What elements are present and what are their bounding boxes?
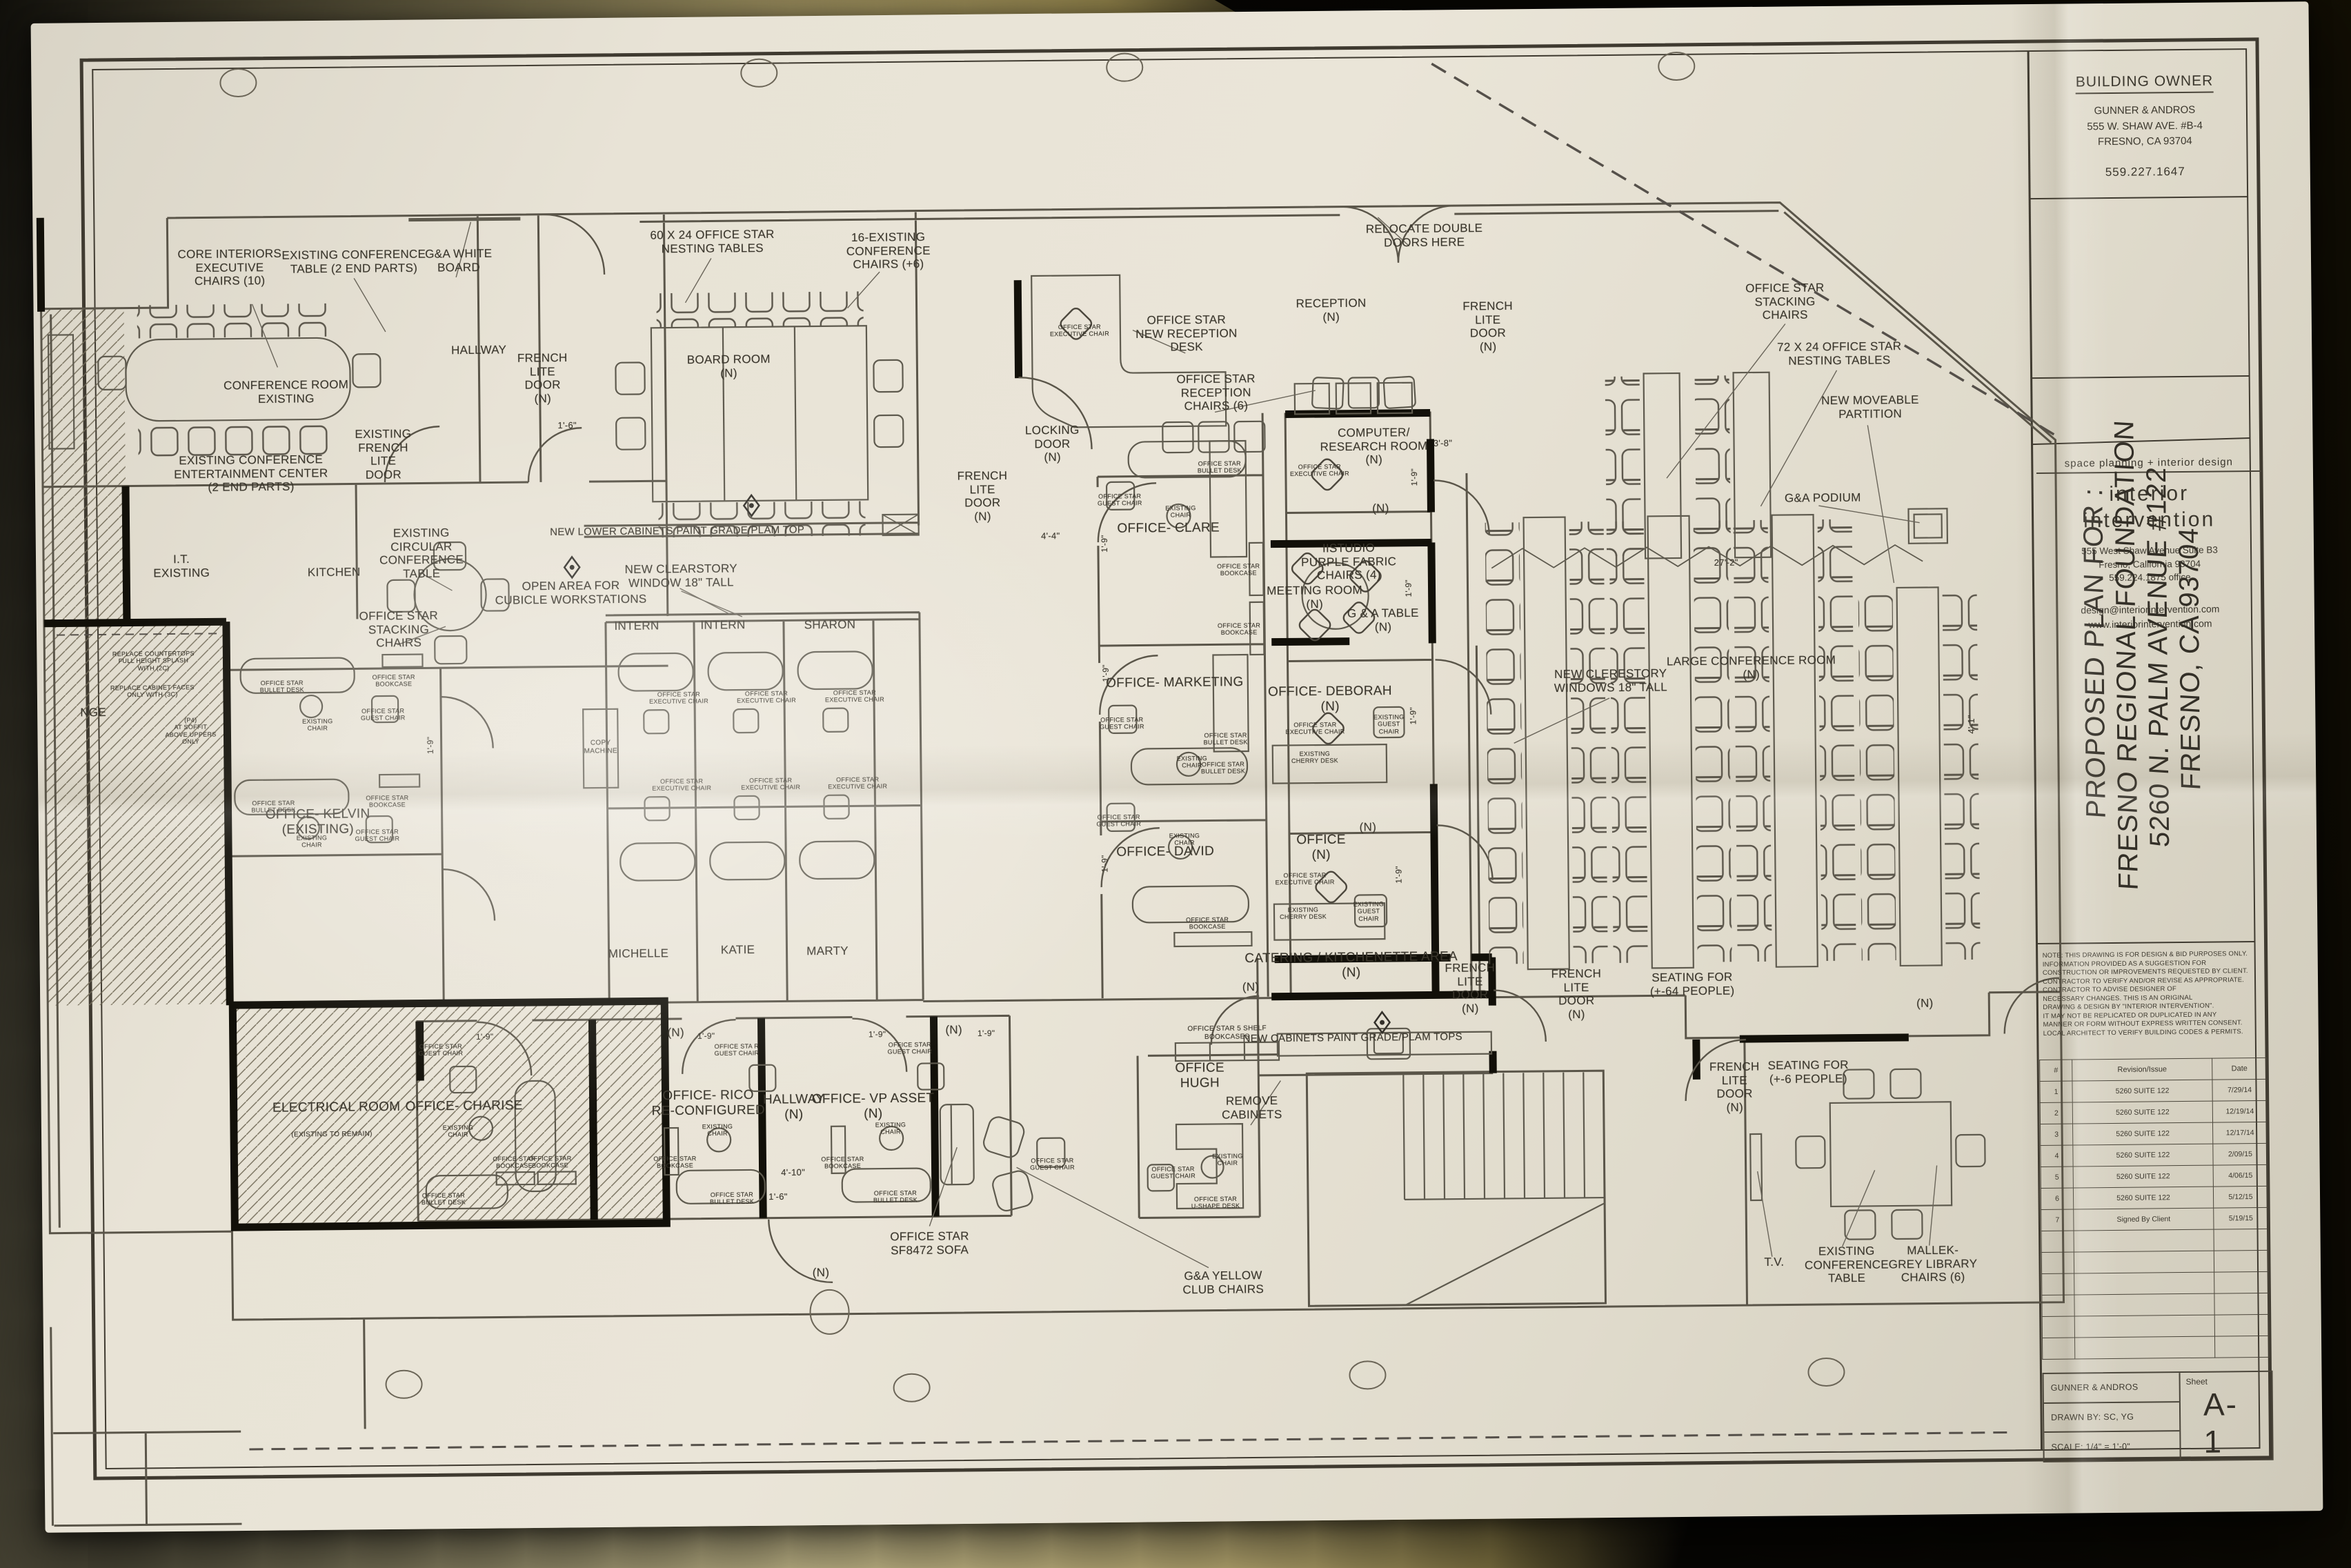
plan-label: OFFICE STA R GUEST CHAIR [714, 1042, 759, 1057]
plan-label: (N) [1372, 502, 1389, 515]
plan-label: OFFICE STAR BULLET DESK [260, 679, 304, 694]
plan-label: OFFICE STAR BOOKCASE [821, 1155, 864, 1170]
plan-label: FRENCH LITE DOOR (N) [1445, 961, 1495, 1016]
plan-label: OFFICE STAR EXECUTIVE CHAIR [649, 691, 708, 706]
plan-label: (N) [945, 1023, 962, 1037]
plan-label: 16-EXISTING CONFERENCE CHAIRS (+6) [846, 230, 931, 272]
plan-label: 1'-9" [1409, 707, 1418, 725]
plan-label: G&A PODIUM [1785, 491, 1861, 506]
plan-label: IISTUDIO PURPLE FABRIC CHAIRS (4) [1301, 541, 1397, 582]
plan-label: KITCHEN [308, 565, 361, 579]
plan-label: 1'-6" [557, 420, 577, 430]
plan-label: OFFICE STAR U-SHAPE DESK [1191, 1195, 1240, 1211]
plan-label: OPEN AREA FOR CUBICLE WORKSTATIONS [495, 579, 646, 608]
plan-label: OFFICE- MARKETING [1106, 675, 1244, 691]
plan-label: 4'-1" [1966, 715, 1976, 734]
plan-label: 1'-9" [978, 1029, 995, 1039]
plan-label: OFFICE STAR BULLET DESK [1198, 460, 1242, 475]
plan-label: 72 X 24 OFFICE STAR NESTING TABLES [1777, 339, 1902, 368]
plan-label: NEW MOVEABLE PARTITION [1821, 393, 1919, 421]
plan-label: RECEPTION (N) [1296, 297, 1367, 324]
plan-label: COMPUTER/ RESEARCH ROOM (N) [1320, 426, 1428, 468]
plan-label: OFFICE- DEBORAH (N) [1268, 684, 1392, 715]
plan-label: OFFICE STAR BULLET DESK [710, 1191, 754, 1205]
plan-label: (EXISTING TO REMAIN) [291, 1130, 372, 1139]
plan-label: G&A YELLOW CLUB CHAIRS [1182, 1269, 1264, 1297]
plan-label: G&A WHITE BOARD [425, 247, 493, 275]
plan-label: OFFICE STAR BOOKCASE [373, 673, 415, 688]
plan-label: REPLACE CABINET FACES ONLY WITH (3C) [110, 684, 195, 699]
plan-label: OFFICE STAR GUEST CHAIR [887, 1041, 932, 1055]
plan-label: OFFICE STAR SF8472 SOFA [890, 1229, 969, 1258]
plan-label: NEW CABINETS PAINT GRADE/PLAM TOPS [1243, 1031, 1462, 1044]
plan-label: 1'-9" [869, 1030, 886, 1040]
plan-label: MALLEK- GREY LIBRARY CHAIRS (6) [1888, 1243, 1977, 1284]
plan-label: EXISTING CONFERENCE TABLE [1805, 1244, 1889, 1286]
plan-label: OFFICE STAR EXECUTIVE CHAIR [737, 690, 796, 705]
plan-label: RELOCATE DOUBLE DOORS HERE [1366, 221, 1483, 250]
photo-of-floor-plan: CORE INTERIORS EXECUTIVE CHAIRS (10)EXIS… [0, 0, 2351, 1568]
plan-label: 1'-9" [476, 1033, 494, 1042]
plan-label: CONFERENCE ROOM EXISTING [224, 378, 348, 406]
drawing-sheet: CORE INTERIORS EXECUTIVE CHAIRS (10)EXIS… [31, 1, 2323, 1533]
plan-label: MICHELLE [608, 946, 669, 961]
plan-label: FRENCH LITE DOOR (N) [517, 351, 568, 406]
plan-label: 27'-2" [1714, 557, 1738, 568]
plan-label: 1'-9" [1404, 579, 1413, 597]
plan-label: OFFICE STAR GUEST CHAIR [418, 1043, 463, 1058]
plan-label: OFFICE STAR NEW RECEPTION DESK [1135, 313, 1238, 355]
plan-label: EXISTING GUEST CHAIR [1373, 713, 1405, 735]
plan-label: OFFICE STAR BOOKCASE [1186, 916, 1229, 931]
plan-label: ELECTRICAL ROOM [272, 1100, 401, 1116]
plan-label: OFFICE STAR BOOKCASE [1218, 622, 1260, 636]
plan-label: (N) [667, 1026, 684, 1040]
plan-label: EXISTING CIRCULAR CONFERENCE TABLE [379, 526, 464, 581]
plan-label: OFFICE HUGH [1175, 1060, 1224, 1091]
plan-label: CATERING / KITCHENETTE AREA (N) [1244, 949, 1458, 982]
plan-label: MARTY [806, 944, 849, 958]
plan-label: NEW LOWER CABINETS PAINT GRADE/PLAM TOP [550, 524, 804, 538]
plan-label: REPLACE COUNTERTOPS FULL HEIGHT SPLASH W… [112, 650, 195, 672]
plan-label: OFFICE STAR EXECUTIVE CHAIR [1290, 463, 1349, 478]
plan-label: 1'-9" [697, 1031, 715, 1041]
plan-label: SHARON [804, 618, 856, 632]
plan-label: G & A TABLE (N) [1347, 606, 1419, 634]
plan-label: 1'-9" [1100, 535, 1110, 553]
plan-label: 1'-6" [768, 1191, 788, 1202]
plan-label: SEATING FOR (+-64 PEOPLE) [1650, 971, 1735, 999]
plan-label: OFFICE STAR GUEST CHAIR [361, 707, 406, 722]
plan-label: OFFICE STAR EXECUTIVE CHAIR [1285, 721, 1345, 736]
plan-label: OFFICE STAR EXECUTIVE CHAIR [1050, 323, 1109, 338]
plan-label: OFFICE STAR BOOKCASE [653, 1155, 696, 1169]
plan-label: NEW CLERESTORY WINDOWS 18" TALL [1554, 666, 1668, 695]
plan-label: OFFICE- CHARISE [405, 1098, 522, 1115]
plan-label: SEATING FOR (+-6 PEOPLE) [1767, 1058, 1849, 1086]
plan-label: OFFICE- RICO RE-CONFIGURED [651, 1088, 765, 1120]
plan-label: INTERN [614, 619, 659, 633]
plan-label: OFFICE- VP ASSET (N) [812, 1091, 935, 1122]
plan-label: OFFICE STAR GUEST CHAIR [1098, 493, 1142, 507]
plan-label: 1'-9" [1394, 866, 1404, 884]
plan-label: FRENCH LITE DOOR (N) [958, 469, 1008, 524]
plan-label: OFFICE STAR GUEST CHAIR [1151, 1165, 1196, 1180]
plan-label: OFFICE STAR BOOKCASE [1217, 562, 1260, 577]
sheet-cell: Sheet A-1 [2180, 1372, 2272, 1460]
plan-label: FRENCH LITE DOOR (N) [1462, 299, 1513, 355]
plan-label: OFFICE- CLARE [1117, 520, 1220, 536]
plan-label: OFFICE STAR STACKING CHAIRS [1745, 281, 1825, 322]
plan-label: INTERN [700, 618, 745, 632]
plan-label: EXISTING FRENCH LITE DOOR [355, 427, 412, 482]
plan-label: EXISTING CHAIR [702, 1123, 733, 1138]
plan-label: OFFICE STAR BOOKCASE [528, 1155, 571, 1169]
plan-label: CORE INTERIORS EXECUTIVE CHAIRS (10) [177, 247, 281, 289]
plan-label: (N) [813, 1266, 830, 1280]
plan-label: EXISTING CHERRY DESK [1280, 906, 1327, 921]
plan-label: I.T. EXISTING [153, 553, 210, 580]
plan-label: BOARD ROOM (N) [687, 353, 771, 381]
plan-label: EXISTING GUEST CHAIR [1353, 900, 1385, 922]
plan-label: OFFICE STAR RECEPTION CHAIRS (6) [1176, 372, 1256, 413]
plan-label: REMOVE CABINETS [1222, 1094, 1282, 1122]
plan-label: OFFICE STAR GUEST CHAIR [1030, 1157, 1075, 1171]
revision-col-date: Date [2212, 1058, 2267, 1080]
sheet-number: A-1 [2203, 1385, 2250, 1460]
plan-label: 1'-9" [1410, 468, 1420, 486]
plan-label: 1'-9" [1100, 855, 1110, 873]
plan-label: OFFICE STAR BULLET DESK [421, 1191, 466, 1206]
plan-label: OFFICE STAR EXECUTIVE CHAIR [1275, 871, 1334, 886]
plan-label: (P4) AT SOFFIT ABOVE UPPERS ONLY [165, 716, 217, 745]
plan-label: OFFICE STAR BULLET DESK [873, 1189, 917, 1204]
plan-label: EXISTING CHAIR [302, 717, 333, 732]
plan-label: 1'-9" [1102, 664, 1111, 682]
plan-label: KATIE [721, 943, 755, 957]
plan-label: EXISTING CHAIR [443, 1124, 474, 1138]
plan-label: OFFICE STAR STACKING CHAIRS [359, 609, 439, 651]
plan-label: EXISTING CONFERENCE TABLE (2 END PARTS) [281, 248, 426, 276]
plan-label: 3'-8" [1434, 438, 1453, 448]
plan-label: FRENCH LITE DOOR (N) [1709, 1060, 1760, 1115]
plan-label: LOCKING DOOR (N) [1025, 424, 1080, 465]
plan-label: 4'-10" [781, 1167, 805, 1178]
plan-label: LARGE CONFERENCE ROOM (N) [1667, 653, 1836, 682]
plan-label: (N) [1916, 997, 1934, 1011]
plan-label: EXISTING CHAIR [1212, 1153, 1243, 1167]
plan-label: (N) [1242, 980, 1260, 994]
plan-label: NGE [80, 706, 106, 720]
plan-label: OFFICE STAR GUEST CHAIR [1100, 716, 1144, 731]
plan-label: HALLWAY [451, 343, 506, 357]
plan-label: EXISTING CHAIR [875, 1121, 906, 1135]
plan-label: 4'-4" [1041, 530, 1060, 541]
plan-label: OFFICE STAR EXECUTIVE CHAIR [825, 689, 884, 704]
plan-label: T.V. [1764, 1256, 1784, 1269]
plan-label: EXISTING CONFERENCE ENTERTAINMENT CENTER… [174, 453, 328, 495]
plan-label: 60 X 24 OFFICE STAR NESTING TABLES [650, 228, 775, 256]
plan-label: FRENCH LITE DOOR (N) [1551, 967, 1601, 1022]
plan-label: EXISTING CHAIR [1165, 504, 1196, 519]
